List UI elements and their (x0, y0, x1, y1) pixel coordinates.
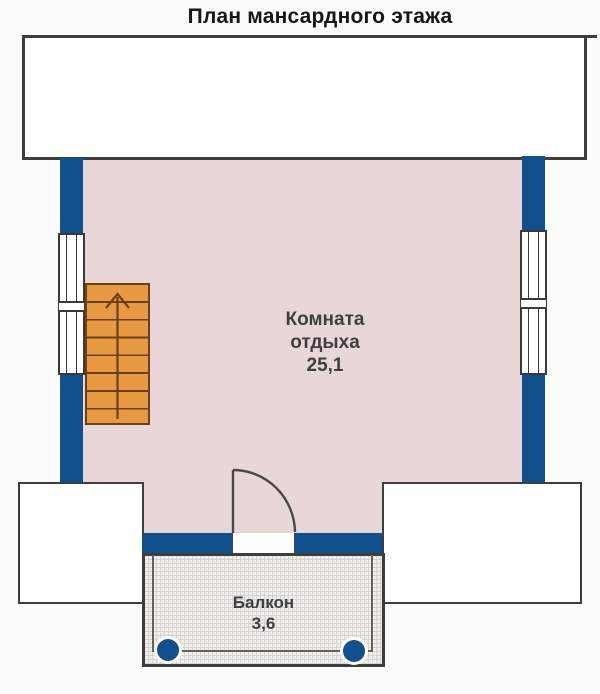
wall-bottom-left (143, 533, 232, 553)
balcony-label: Балкон 3,6 (142, 592, 385, 634)
balcony-post-left (157, 639, 179, 661)
floor-plan: План мансардного этажа Ком (0, 0, 600, 694)
room-name-line2: отдыха (225, 331, 425, 354)
window-divider (59, 301, 84, 312)
window-right (520, 230, 547, 375)
door-opening (232, 533, 295, 553)
room-label: Комната отдыха 25,1 (225, 308, 425, 377)
roof-slope-bottom-left (18, 482, 144, 604)
roof-slope-top (22, 35, 587, 160)
roof-slope-bottom-right (382, 482, 582, 604)
window-divider (521, 298, 546, 309)
window-left (58, 233, 85, 375)
balcony-post-right (343, 640, 365, 662)
balcony-area: 3,6 (142, 613, 385, 634)
room-area: 25,1 (225, 354, 425, 377)
room-name-line1: Комната (225, 308, 425, 331)
staircase (85, 283, 150, 425)
balcony-name: Балкон (142, 592, 385, 613)
wall-bottom-right (295, 533, 382, 553)
plan-title: План мансардного этажа (40, 5, 600, 29)
ridge-line (585, 35, 597, 38)
